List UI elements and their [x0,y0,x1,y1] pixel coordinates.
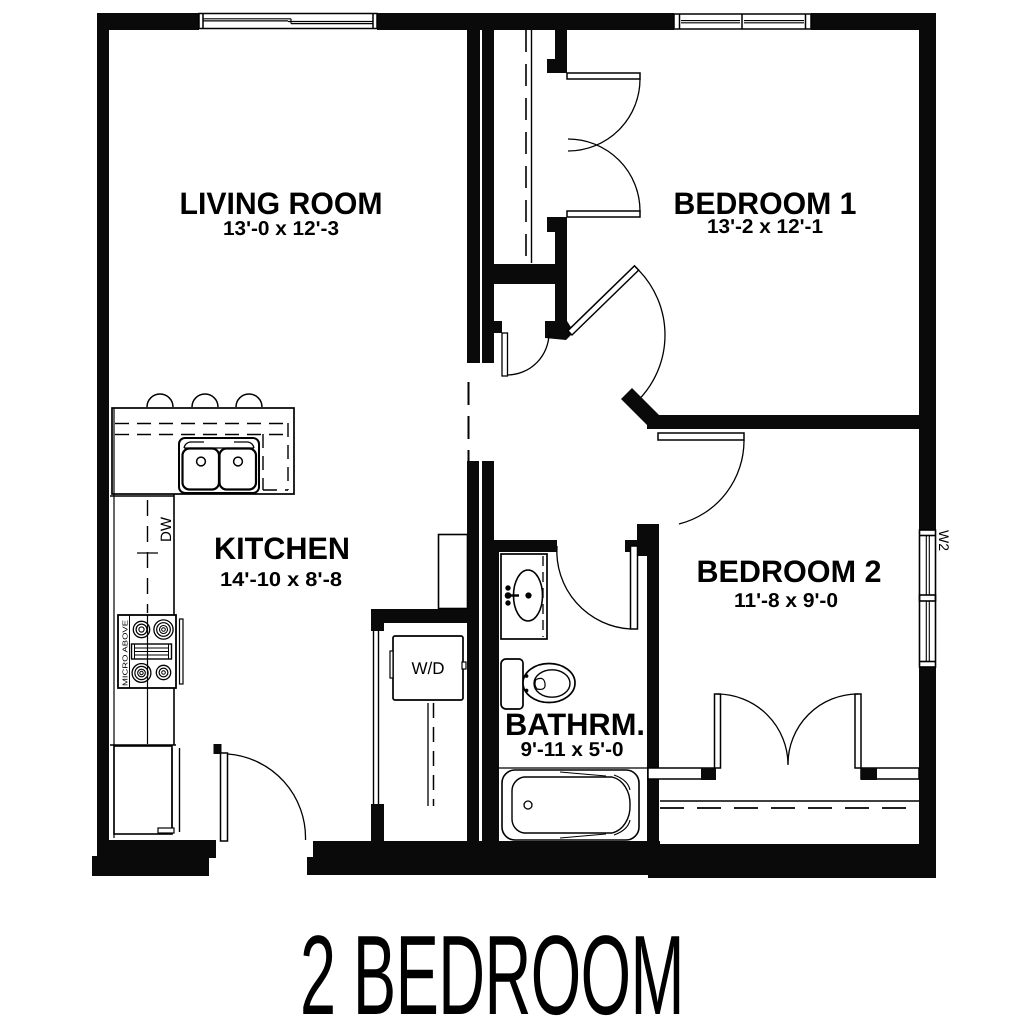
svg-text:2 BEDROOM: 2 BEDROOM [300,912,684,1024]
svg-text:14'-10 x 8'-8: 14'-10 x 8'-8 [220,569,342,591]
svg-text:9'-11 x 5'-0: 9'-11 x 5'-0 [521,739,624,761]
svg-text:W2: W2 [936,530,952,551]
svg-text:LIVING ROOM: LIVING ROOM [180,186,383,221]
svg-text:DW: DW [158,516,175,542]
svg-text:KITCHEN: KITCHEN [214,531,350,566]
svg-text:BATHRM.: BATHRM. [505,707,645,742]
svg-text:13'-0 x 12'-3: 13'-0 x 12'-3 [223,218,339,240]
svg-text:MICRO ABOVE: MICRO ABOVE [121,620,130,686]
svg-text:11'-8 x 9'-0: 11'-8 x 9'-0 [734,590,838,612]
svg-text:BEDROOM 2: BEDROOM 2 [697,554,882,589]
svg-text:13'-2 x 12'-1: 13'-2 x 12'-1 [707,216,823,238]
svg-text:W/D: W/D [411,659,444,678]
